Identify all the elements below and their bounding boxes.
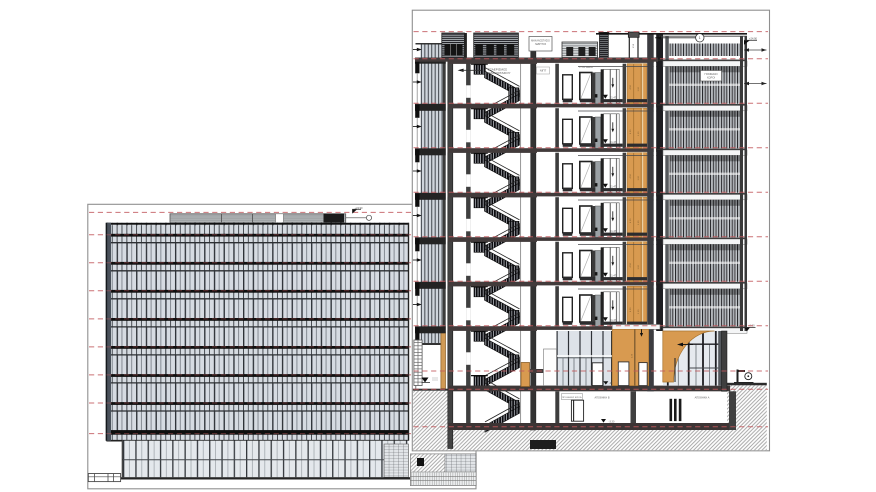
svg-text:ΥΠΝ. ΔΩΜ.: ΥΠΝ. ΔΩΜ. bbox=[579, 65, 594, 69]
svg-text:21.47: 21.47 bbox=[610, 274, 617, 278]
svg-text:+24.90: +24.90 bbox=[749, 37, 758, 41]
svg-text:21.47: 21.47 bbox=[610, 185, 617, 189]
svg-text:21.47: 21.47 bbox=[610, 229, 617, 233]
svg-text:21.47: 21.47 bbox=[610, 318, 617, 322]
svg-text:ΠΡΟΘΗΚΕΣ ΕΙΣΟΔ.: ΠΡΟΘΗΚΕΣ ΕΙΣΟΔ. bbox=[562, 396, 582, 399]
svg-text:ΝΙΠΤ: ΝΙΠΤ bbox=[540, 69, 547, 73]
svg-text:21.47: 21.47 bbox=[610, 96, 617, 100]
svg-text:-3.30: -3.30 bbox=[609, 420, 615, 423]
svg-text:ΑΠΟΘΗΚΗ Α: ΑΠΟΘΗΚΗ Α bbox=[695, 396, 710, 399]
svg-text:ΧΩΡΟΙ: ΧΩΡΟΙ bbox=[707, 76, 715, 80]
svg-text:21.47: 21.47 bbox=[610, 140, 617, 144]
svg-text:+24.90: +24.90 bbox=[354, 206, 363, 210]
svg-text:ΓΡΑΦΕΙΩΝ: ΓΡΑΦΕΙΩΝ bbox=[705, 72, 718, 76]
svg-text:ΛΕΒΗΤΟΣ: ΛΕΒΗΤΟΣ bbox=[535, 43, 547, 46]
svg-text:ΑΠΟΘΗΚΗ Β: ΑΠΟΘΗΚΗ Β bbox=[594, 396, 609, 399]
svg-text:ΚΛΙΜΑΚΟΣΤΑΣΙΟΥ: ΚΛΙΜΑΚΟΣΤΑΣΙΟΥ bbox=[485, 71, 511, 75]
svg-text:1: 1 bbox=[699, 36, 701, 40]
